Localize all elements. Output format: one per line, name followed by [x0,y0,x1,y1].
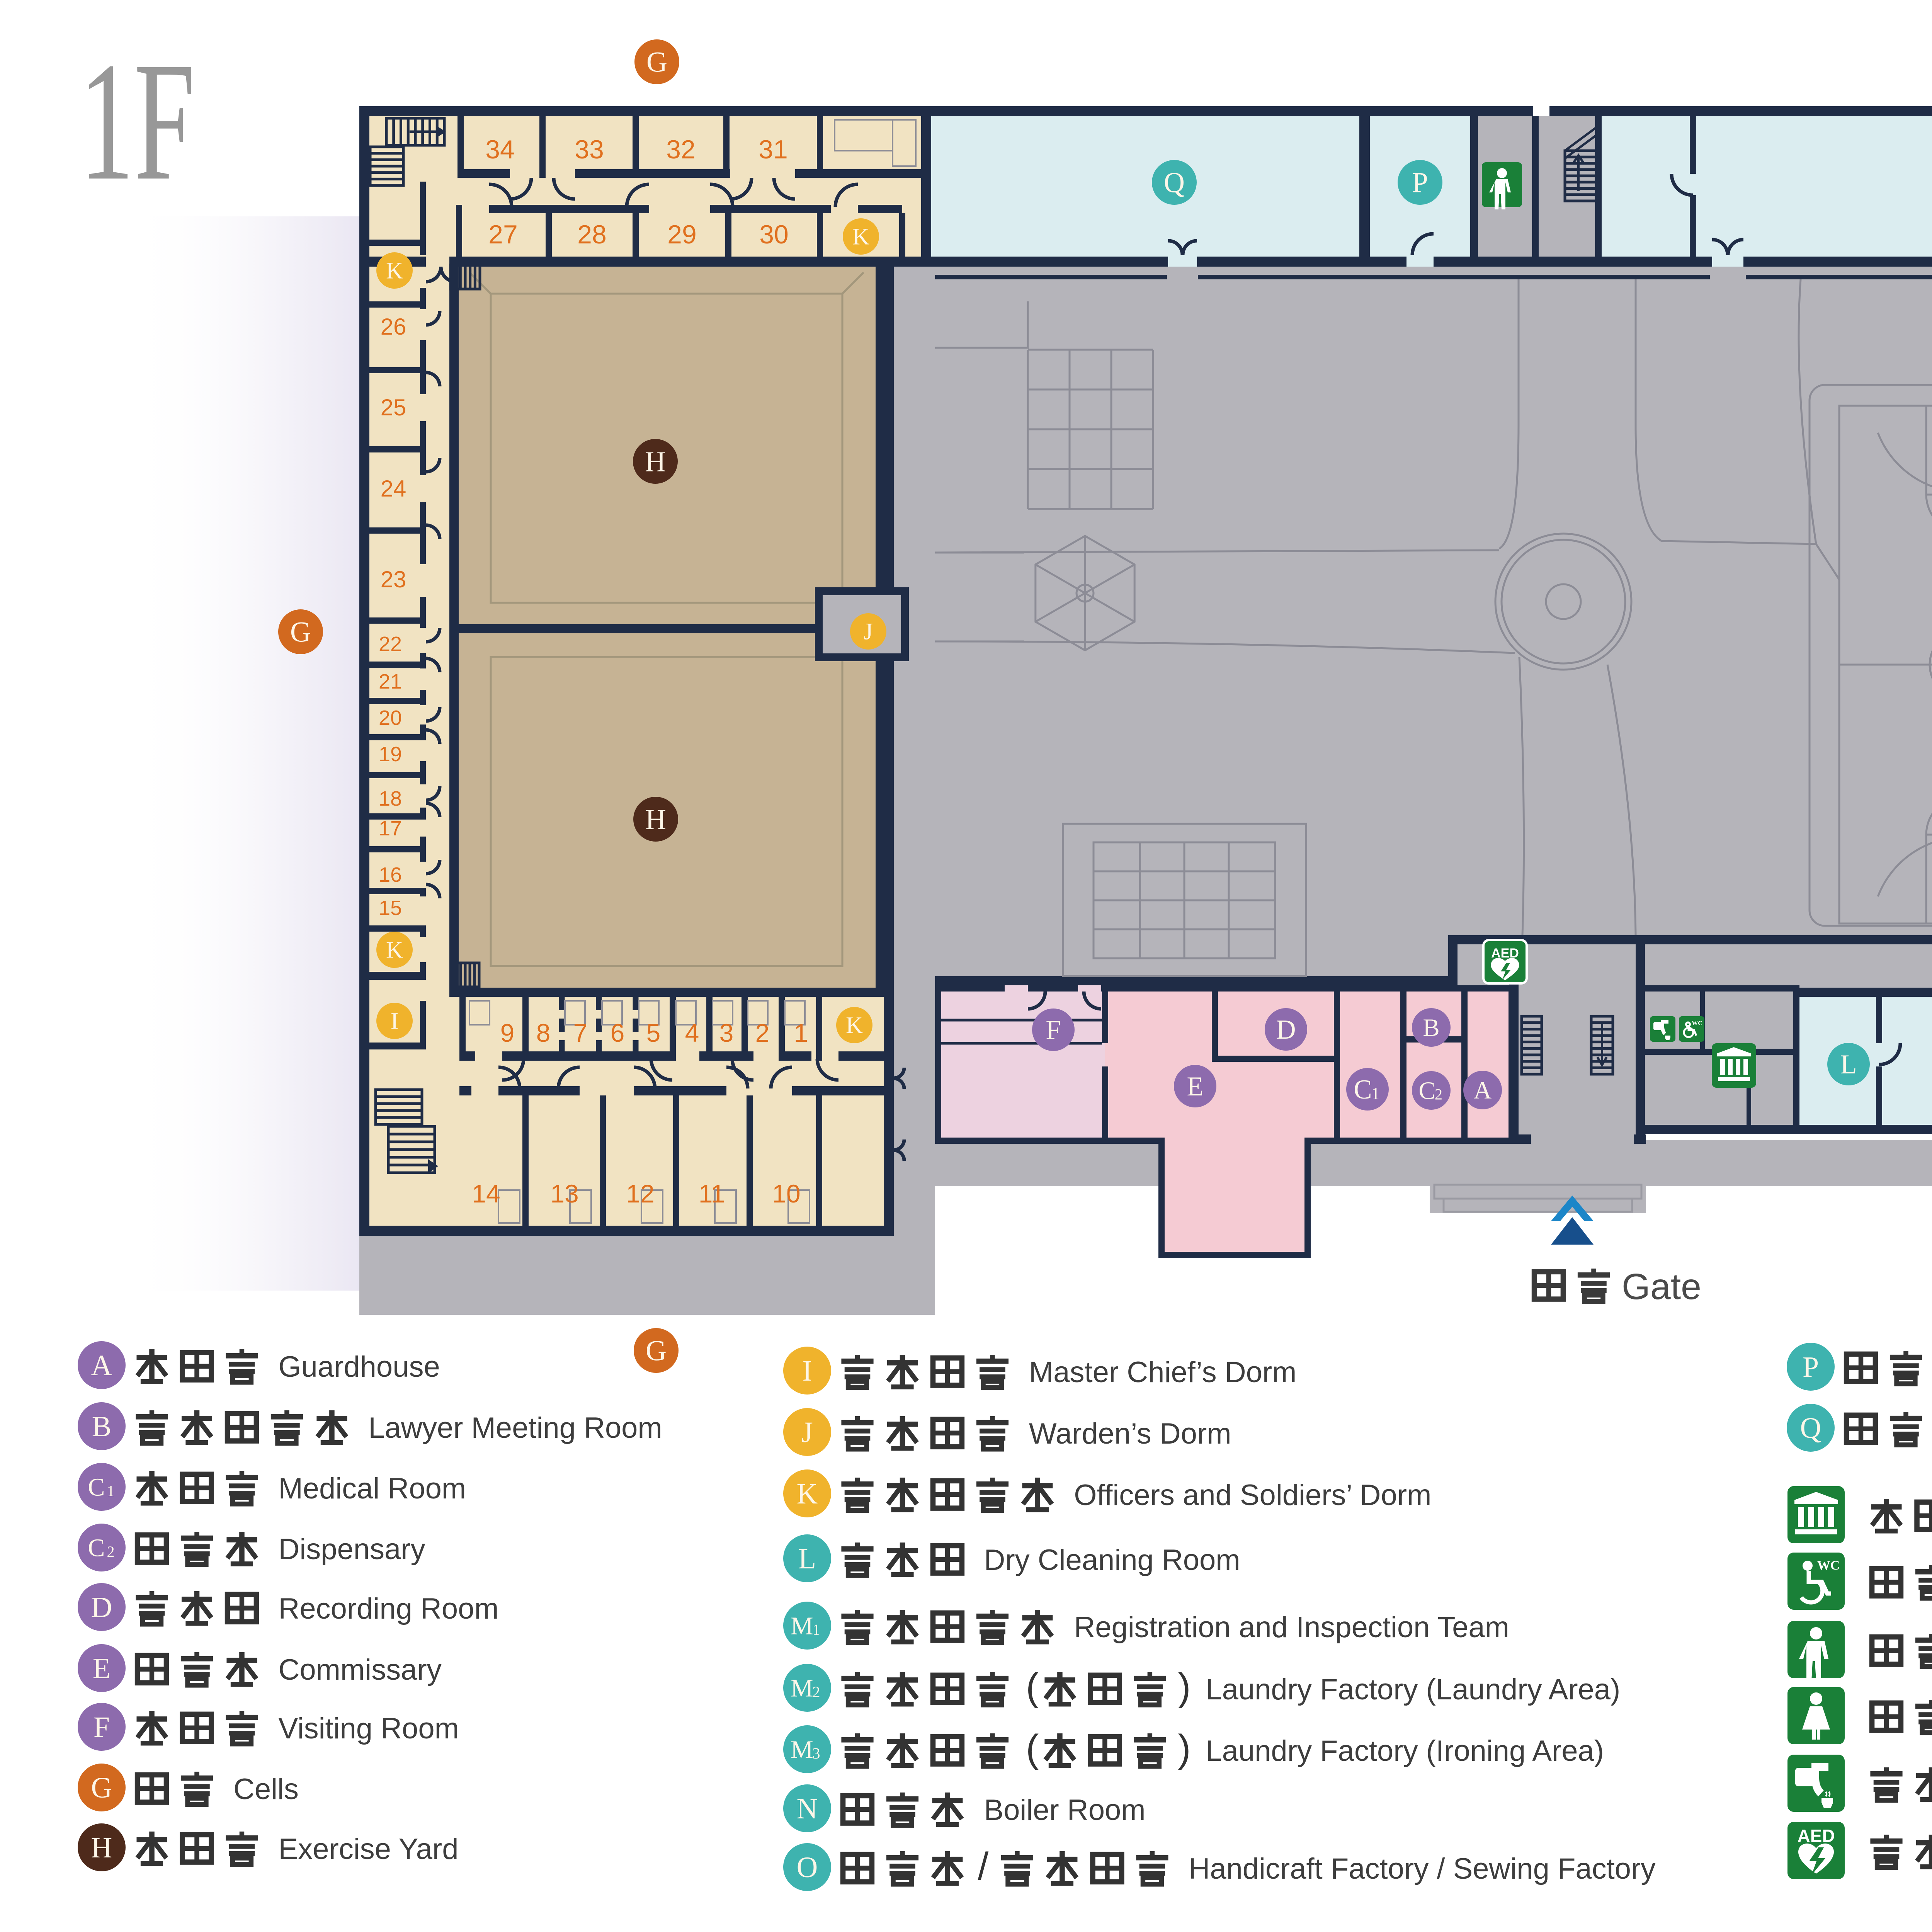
svg-text:): ) [1178,1665,1190,1709]
svg-text:33: 33 [575,135,604,164]
svg-text:O: O [797,1851,818,1884]
svg-text:2: 2 [755,1019,770,1047]
svg-text:15: 15 [379,896,402,920]
svg-text:22: 22 [379,633,402,656]
svg-text:9: 9 [500,1019,515,1047]
svg-text:K: K [386,937,403,963]
svg-text:Warden’s Dorm: Warden’s Dorm [1029,1417,1231,1450]
svg-text:2: 2 [107,1543,115,1560]
svg-text:Guardhouse: Guardhouse [278,1350,440,1383]
svg-text:H: H [645,446,666,478]
svg-text:31: 31 [759,135,788,164]
svg-text:Dry Cleaning Room: Dry Cleaning Room [984,1544,1240,1577]
svg-text:3: 3 [813,1745,820,1762]
svg-text:): ) [1178,1727,1190,1770]
svg-text:(: ( [1026,1727,1039,1770]
svg-text:19: 19 [379,743,402,766]
svg-text:5: 5 [646,1019,661,1047]
svg-text:12: 12 [626,1179,654,1208]
svg-text:20: 20 [379,706,402,730]
svg-text:11: 11 [699,1179,725,1208]
svg-text:30: 30 [759,220,789,249]
svg-text:K: K [852,224,869,250]
svg-text:34: 34 [485,135,515,164]
svg-text:21: 21 [379,670,402,693]
svg-text:K: K [797,1478,818,1510]
svg-text:Visiting Room: Visiting Room [278,1712,459,1745]
svg-text:28: 28 [577,220,607,249]
svg-text:2: 2 [813,1683,820,1701]
svg-text:26: 26 [381,314,406,340]
svg-text:M: M [791,1735,813,1764]
svg-text:F: F [94,1711,110,1743]
svg-text:4: 4 [685,1019,699,1047]
svg-text:C: C [88,1534,105,1562]
svg-text:1: 1 [794,1019,808,1047]
svg-text:G: G [290,616,311,648]
svg-text:24: 24 [381,476,406,502]
svg-text:23: 23 [381,566,406,592]
svg-text:Laundry Factory (Ironing Area): Laundry Factory (Ironing Area) [1206,1735,1604,1767]
svg-text:Recording Room: Recording Room [278,1592,498,1625]
svg-text:7: 7 [573,1019,588,1047]
svg-text:B: B [92,1410,112,1443]
svg-text:1: 1 [107,1482,115,1500]
svg-text:Laundry Factory (Laundry Area): Laundry Factory (Laundry Area) [1206,1673,1620,1706]
svg-text:Q: Q [1164,167,1185,199]
svg-text:1: 1 [813,1621,820,1638]
svg-text:27: 27 [488,220,518,249]
svg-text:E: E [93,1652,111,1685]
svg-text:AED: AED [1491,946,1519,961]
svg-text:N: N [797,1793,818,1825]
svg-text:I: I [802,1355,812,1387]
svg-text:Cells: Cells [233,1773,299,1806]
svg-text:17: 17 [379,817,402,840]
svg-text:C: C [1418,1077,1435,1105]
svg-text:Gate: Gate [1622,1266,1701,1307]
svg-text:E: E [1187,1071,1203,1102]
svg-text:Registration and Inspection Te: Registration and Inspection Team [1074,1611,1509,1644]
svg-text:Dispensary: Dispensary [278,1533,425,1566]
svg-text:AED: AED [1797,1826,1835,1846]
svg-text:25: 25 [381,395,406,420]
svg-text:(: ( [1026,1665,1039,1709]
svg-text:Master Chief’s Dorm: Master Chief’s Dorm [1029,1356,1297,1389]
svg-text:WC: WC [1817,1558,1840,1573]
svg-text:P: P [1412,167,1428,199]
svg-text:G: G [646,1335,667,1367]
svg-text:13: 13 [550,1179,578,1208]
svg-text:WC: WC [1692,1020,1702,1027]
svg-text:Exercise Yard: Exercise Yard [278,1833,458,1866]
svg-text:M: M [791,1674,813,1702]
svg-text:16: 16 [379,863,402,886]
svg-text:Commissary: Commissary [278,1653,441,1686]
svg-text:I: I [391,1009,398,1034]
svg-text:G: G [646,46,667,78]
svg-text:10: 10 [772,1179,800,1208]
svg-text:H: H [91,1832,112,1864]
svg-text:Boiler Room: Boiler Room [984,1794,1145,1827]
svg-text:M: M [791,1612,813,1640]
svg-text:K: K [386,258,403,284]
svg-text:F: F [1046,1015,1061,1045]
svg-text:C: C [1354,1075,1372,1105]
svg-text:8: 8 [536,1019,551,1047]
svg-text:P: P [1803,1351,1819,1383]
svg-text:J: J [801,1416,813,1449]
svg-text:A: A [91,1349,112,1382]
svg-text:H: H [645,804,666,836]
svg-text:D: D [1276,1015,1296,1045]
svg-text:B: B [1423,1014,1439,1042]
svg-text:Lawyer Meeting Room: Lawyer Meeting Room [368,1412,662,1444]
svg-text:/: / [978,1845,988,1888]
svg-text:C: C [88,1473,105,1501]
svg-text:K: K [846,1013,863,1039]
svg-text:18: 18 [379,787,402,810]
svg-text:L: L [1840,1049,1857,1080]
svg-text:A: A [1474,1077,1492,1104]
svg-text:D: D [91,1591,112,1624]
svg-text:1F: 1F [79,27,195,216]
svg-text:J: J [864,619,873,645]
svg-text:Q: Q [1800,1412,1821,1444]
svg-text:Officers and Soldiers’ Dorm: Officers and Soldiers’ Dorm [1074,1479,1431,1512]
svg-text:Handicraft Factory / Sewing Fa: Handicraft Factory / Sewing Factory [1189,1852,1655,1885]
svg-text:Medical Room: Medical Room [278,1472,466,1505]
svg-text:29: 29 [667,220,697,249]
svg-text:32: 32 [666,135,696,164]
svg-text:L: L [798,1543,816,1575]
svg-text:6: 6 [611,1019,625,1047]
svg-text:3: 3 [719,1019,734,1047]
svg-text:G: G [91,1772,112,1804]
svg-text:14: 14 [472,1179,500,1208]
svg-text:1: 1 [1371,1084,1380,1103]
svg-text:2: 2 [1435,1085,1442,1103]
